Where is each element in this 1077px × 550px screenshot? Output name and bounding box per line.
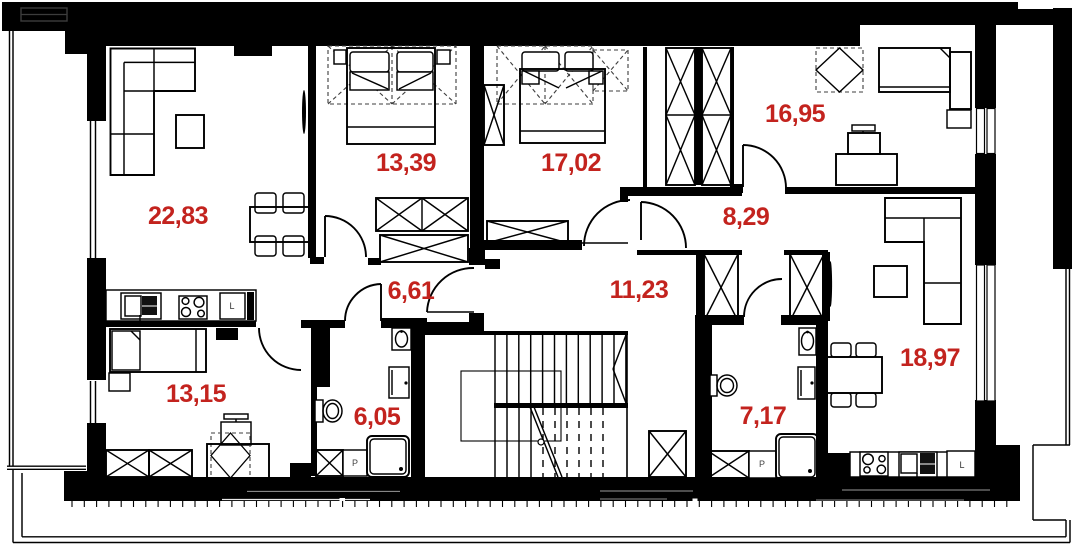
- svg-text:8,29: 8,29: [723, 203, 770, 231]
- svg-text:6,61: 6,61: [388, 277, 435, 305]
- svg-text:13,15: 13,15: [166, 380, 227, 408]
- svg-text:11,23: 11,23: [610, 276, 669, 304]
- svg-text:16,95: 16,95: [765, 100, 826, 128]
- svg-text:7,17: 7,17: [740, 402, 787, 430]
- svg-text:P: P: [759, 459, 765, 469]
- svg-text:P: P: [352, 458, 358, 468]
- svg-text:13,39: 13,39: [376, 149, 436, 177]
- svg-text:L: L: [229, 301, 234, 311]
- svg-text:22,83: 22,83: [148, 202, 208, 230]
- svg-text:L: L: [959, 460, 964, 470]
- svg-text:17,02: 17,02: [541, 149, 601, 177]
- svg-text:6,05: 6,05: [354, 403, 401, 431]
- svg-text:18,97: 18,97: [900, 344, 960, 372]
